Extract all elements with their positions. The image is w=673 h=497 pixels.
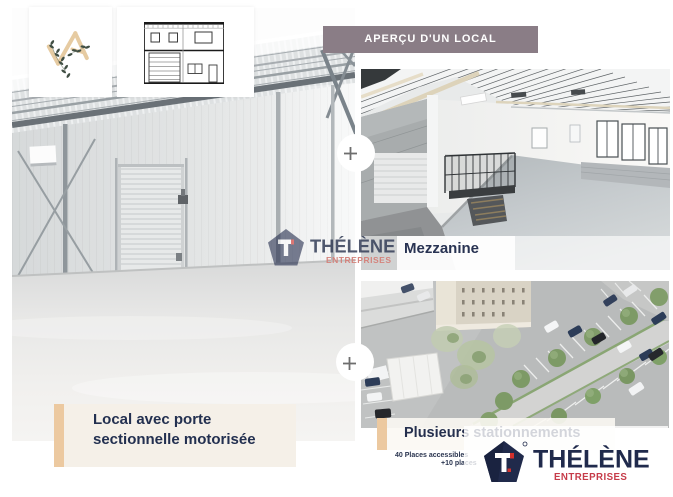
svg-text:ENTREPRISES: ENTREPRISES — [326, 255, 392, 265]
svg-text:THÉLÈNE: THÉLÈNE — [533, 445, 650, 474]
svg-text:ENTREPRISES: ENTREPRISES — [554, 472, 627, 483]
svg-text:THÉLÈNE: THÉLÈNE — [310, 236, 395, 257]
